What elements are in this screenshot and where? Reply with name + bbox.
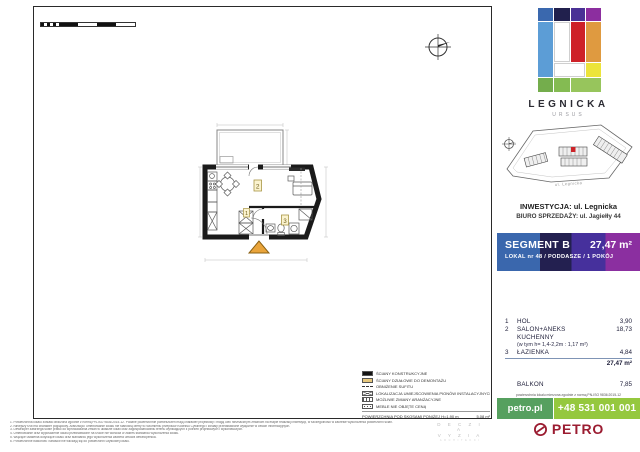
legend-swatch-solid-wall (362, 371, 373, 376)
map-street-label: ul. Legnicka (555, 180, 583, 187)
map-unit-marker (571, 147, 576, 152)
logo-cell (554, 63, 585, 77)
legend-swatch-partition-wall (362, 378, 373, 383)
room-table: 1 HOL 3,90 2 SALON+ANEKS KUCHENNY 18,73 … (505, 318, 632, 389)
brand-name: PETRO (552, 421, 604, 437)
room-tag-hall: 1 (245, 211, 248, 217)
legend-label: ŚCIANY DZIAŁOWE DO DEMONTAŻU (376, 378, 446, 383)
logo-grid-icon (538, 8, 600, 92)
north-arrow-icon (424, 33, 452, 61)
balcony-label: BALKON (517, 381, 604, 389)
logo-cell (538, 78, 553, 92)
legend-swatch-dashed-line (362, 386, 373, 387)
legend-footer-label: POWIERZCHNIA POD SKOSAMI PONIŻEJ H=1,90 … (362, 414, 459, 419)
logo-cell (538, 8, 553, 21)
legend-item: MOŻLIWE ZMIANY ARANŻACYJNE (362, 397, 490, 402)
legend-footer-value: 5,08 m² (476, 414, 490, 419)
room-area: 4,84 (604, 349, 632, 357)
studio-mark-line3: A R C H I T E K C I (433, 439, 487, 442)
balcony-area: 7,85 (604, 381, 632, 389)
logo-cell (586, 63, 601, 77)
segment-area: 27,47 m² (590, 239, 632, 251)
legend-item: OBNIŻENIE SUFITU (362, 384, 490, 389)
legend-swatch-dotted-box (362, 404, 373, 409)
disclaimer: 1. Powierzchnia lokalu została obliczona… (10, 421, 426, 443)
scale-segment (116, 23, 135, 26)
segment-row-primary: SEGMENT B 27,47 m² (497, 233, 640, 251)
logo-cell (554, 8, 570, 21)
studio-mark-line2: V Y Z I A (433, 433, 487, 438)
segment-name: SEGMENT B (505, 239, 570, 251)
room-number: 2 (505, 326, 517, 342)
table-row: 3 ŁAZIENKA 4,84 (505, 349, 632, 357)
map-building-left (524, 153, 548, 167)
room-tag-salon: 2 (256, 183, 260, 190)
legend-footer: POWIERZCHNIA POD SKOSAMI PONIŻEJ H=1,90 … (362, 411, 490, 419)
logo-cell (554, 78, 570, 92)
scale-bar (40, 22, 136, 27)
room-area: 3,90 (604, 318, 632, 326)
logo-cell (571, 22, 585, 62)
logo-cell (586, 8, 601, 21)
map-building-center (559, 147, 587, 166)
tv-cabinet (289, 168, 305, 172)
site-map: ul. Legnicka (497, 122, 639, 197)
studio-mark: D E C Z I A V Y Z I A A R C H I T E K C … (433, 422, 487, 442)
room-name: SALON+ANEKS KUCHENNY (517, 326, 604, 342)
room-name: HOL (517, 318, 604, 326)
room-number: 1 (505, 318, 517, 326)
phone-label: +48 531 001 001 (554, 398, 640, 419)
logo-subtitle: URSUS (497, 112, 640, 118)
legend-swatch-hatched-box (362, 397, 373, 402)
legend-item: ŚCIANY DZIAŁOWE DO DEMONTAŻU (362, 378, 490, 383)
scale-segment (59, 23, 78, 26)
studio-mark-line1: D E C Z I A (433, 422, 487, 432)
total-area: 27,47 m² (505, 359, 632, 368)
table-row: 1 HOL 3,90 (505, 318, 632, 326)
segment-details: LOKAL nr 48 / PODDASZE / 1 POKÓJ (497, 251, 640, 260)
floor-plan: 1 2 3 (193, 120, 333, 265)
legend-swatch-crossed-box (362, 391, 373, 396)
room-area: 18,73 (604, 326, 632, 342)
logo-cell (554, 22, 570, 62)
contact-bar: petro.pl +48 531 001 001 (497, 398, 640, 419)
legend-label: ŚCIANY KONSTRUKCYJNE (376, 371, 427, 376)
room-note: (w tym h= 1,4-2,2m : 1,17 m²) (517, 342, 632, 349)
legend-item: LOKALIZACJA UMIEJSCOWIENIA PIONÓW INSTAL… (362, 391, 490, 396)
room-number: 3 (505, 349, 517, 357)
legend-label: MOŻLIWE ZMIANY ARANŻACYJNE (376, 397, 441, 402)
entrance-triangle (249, 241, 269, 253)
logo-cell (538, 22, 553, 77)
legend: ŚCIANY KONSTRUKCYJNE ŚCIANY DZIAŁOWE DO … (362, 371, 490, 419)
logo-cell (571, 78, 601, 92)
development-logo: LEGNICKA URSUS (497, 8, 640, 118)
website-label: petro.pl (497, 398, 554, 419)
disclaimer-line: 6. Powierzchnie balkonów i tarasów nie w… (10, 440, 426, 444)
logo-cell (586, 22, 601, 62)
scale-segment (97, 23, 116, 26)
legend-label: OBNIŻENIE SUFITU (376, 384, 413, 389)
brand-logo: PETRO (497, 421, 640, 437)
legend-item: ŚCIANY KONSTRUKCYJNE (362, 371, 490, 376)
petro-barrel-icon (533, 422, 548, 437)
logo-title: LEGNICKA (497, 99, 640, 110)
legend-label: LOKALIZACJA UMIEJSCOWIENIA PIONÓW INSTAL… (376, 391, 490, 396)
plan-sheet: 1 2 3 ŚCIANY KONSTRUKCYJNE ŚCIANY DZIAŁO… (0, 0, 640, 452)
segment-info-box: SEGMENT B 27,47 m² LOKAL nr 48 / PODDASZ… (497, 233, 640, 271)
legend-item: MEBLE NIE OBJĘTE CENĄ (362, 404, 490, 409)
table-row: 2 SALON+ANEKS KUCHENNY 18,73 (505, 326, 632, 342)
table-row-balcony: BALKON 7,85 (505, 381, 632, 389)
norm-note: powierzchnia lokalu mierzona zgodnie z n… (497, 393, 640, 397)
investment-caption: INWESTYCJA: ul. Legnicka (497, 202, 640, 211)
balcony (217, 130, 283, 165)
room-name: ŁAZIENKA (517, 349, 604, 357)
legend-label: MEBLE NIE OBJĘTE CENĄ (376, 404, 426, 409)
sales-office-caption: BIURO SPRZEDAŻY: ul. Jagiełły 44 (497, 213, 640, 220)
logo-cell (571, 8, 585, 21)
scale-segment (78, 23, 97, 26)
